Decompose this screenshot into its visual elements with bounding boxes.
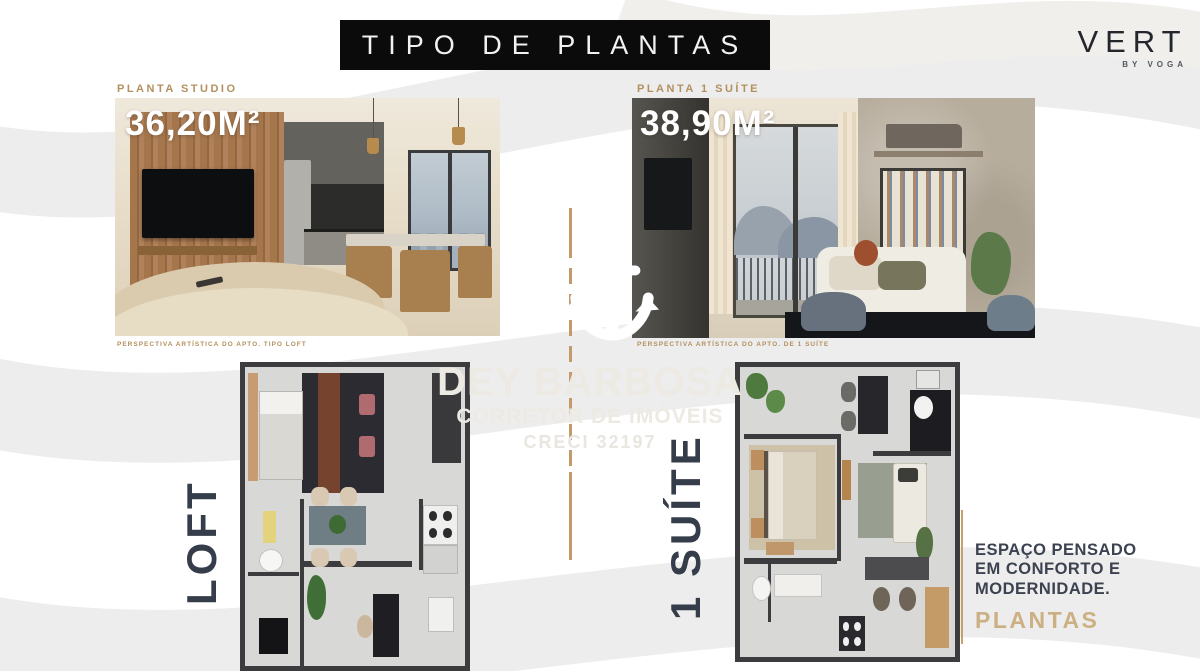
entry-rug bbox=[259, 618, 288, 654]
dresser bbox=[766, 542, 794, 555]
wardrobe bbox=[248, 373, 258, 481]
sofa-pillow bbox=[878, 261, 926, 290]
interior-wall bbox=[837, 434, 841, 562]
dining-chair bbox=[987, 295, 1035, 331]
footer-highlight: PLANTAS bbox=[975, 607, 1190, 634]
plant bbox=[971, 232, 1011, 294]
chair bbox=[340, 548, 358, 567]
chair bbox=[841, 411, 856, 431]
chair bbox=[311, 487, 329, 506]
pillow bbox=[359, 436, 374, 457]
pendant-light bbox=[452, 127, 465, 145]
suite-area: 38,90M² bbox=[640, 104, 775, 144]
tv-shelf bbox=[138, 246, 257, 256]
kitchen-backsplash bbox=[304, 184, 385, 232]
bed-platform bbox=[302, 373, 383, 493]
dining-table bbox=[858, 376, 888, 434]
kitchen-cabinet bbox=[925, 587, 949, 648]
bed bbox=[768, 451, 817, 540]
interior-wall bbox=[419, 499, 423, 571]
anchor-icon bbox=[563, 218, 661, 368]
footer-accent-line bbox=[961, 510, 963, 644]
plant bbox=[766, 390, 785, 413]
shower-box bbox=[916, 370, 940, 389]
sink bbox=[428, 597, 454, 632]
cooktop bbox=[839, 616, 865, 651]
stool bbox=[899, 587, 916, 610]
watermark: DEY BARBOSA CORRETOR DE IMÓVEIS CRECI 32… bbox=[430, 362, 750, 453]
footer-line-3: MODERNIDADE. bbox=[975, 580, 1190, 599]
interior-wall bbox=[744, 434, 839, 439]
dining-chair bbox=[458, 246, 493, 298]
interior-wall bbox=[873, 451, 950, 456]
console bbox=[842, 460, 851, 501]
brand-byline: BY VOGA bbox=[1070, 60, 1195, 69]
person bbox=[854, 240, 878, 266]
bed-runner bbox=[318, 373, 340, 493]
bath-vanity bbox=[263, 511, 276, 544]
desk-chair bbox=[357, 615, 372, 637]
toilet bbox=[259, 549, 283, 572]
cooktop bbox=[423, 505, 458, 546]
chair bbox=[340, 487, 358, 506]
page-title-banner: TIPO DE PLANTAS bbox=[340, 20, 770, 70]
dining-chair bbox=[400, 250, 450, 312]
interior-wall bbox=[744, 558, 836, 563]
dining-chair bbox=[801, 292, 865, 330]
page-title: TIPO DE PLANTAS bbox=[362, 30, 749, 61]
chair bbox=[311, 548, 329, 567]
loft-plan-label: LOFT bbox=[178, 445, 226, 605]
kitchen-island bbox=[865, 557, 930, 580]
chair bbox=[841, 382, 856, 402]
divider-line bbox=[569, 472, 572, 560]
footer-line-1: ESPAÇO PENSADO bbox=[975, 541, 1190, 560]
studio-label: PLANTA STUDIO bbox=[117, 83, 238, 95]
brand-logo: VERT BY VOGA bbox=[1070, 26, 1195, 69]
ship-model bbox=[886, 124, 963, 148]
watermark-registration: CRECI 32197 bbox=[430, 432, 750, 453]
watermark-role: CORRETOR DE IMÓVEIS bbox=[430, 405, 750, 429]
suite-disclaimer: PERSPECTIVA ARTÍSTICA DO APTO. DE 1 SUÍT… bbox=[637, 341, 829, 348]
toilet bbox=[752, 576, 771, 601]
suite-floorplan-image bbox=[735, 362, 960, 662]
bath-vanity bbox=[774, 574, 821, 596]
page: TIPO DE PLANTAS VERT BY VOGA PLANTA STUD… bbox=[0, 0, 1200, 671]
interior-wall bbox=[300, 499, 304, 666]
nightstand bbox=[751, 518, 764, 538]
nightstand bbox=[751, 450, 764, 470]
door-frame bbox=[793, 127, 797, 314]
kitchen-counter bbox=[423, 545, 458, 574]
watermark-name: DEY BARBOSA bbox=[430, 362, 750, 402]
plant bbox=[307, 575, 327, 620]
dining-table bbox=[346, 234, 485, 246]
studio-area: 36,20M² bbox=[125, 104, 260, 144]
tv-screen bbox=[142, 169, 254, 238]
suite-plan-label: 1 SUÍTE bbox=[662, 430, 710, 620]
pillow bbox=[359, 394, 374, 415]
suite-label: PLANTA 1 SUÍTE bbox=[637, 83, 760, 95]
footer-line-2: EM CONFORTO E bbox=[975, 560, 1190, 579]
pendant-light bbox=[367, 138, 379, 154]
pendant-cord bbox=[458, 98, 459, 127]
bed bbox=[259, 391, 303, 480]
wall-shelf bbox=[874, 151, 983, 157]
interior-wall bbox=[248, 572, 299, 576]
footer-tagline: ESPAÇO PENSADO EM CONFORTO E MODERNIDADE… bbox=[975, 541, 1190, 634]
pendant-cord bbox=[373, 98, 374, 138]
desk bbox=[373, 594, 399, 657]
brand-name: VERT bbox=[1070, 26, 1195, 57]
studio-disclaimer: PERSPECTIVA ARTÍSTICA DO APTO. TIPO LOFT bbox=[117, 341, 307, 348]
bed-pillows bbox=[260, 392, 302, 415]
stool bbox=[873, 587, 890, 610]
